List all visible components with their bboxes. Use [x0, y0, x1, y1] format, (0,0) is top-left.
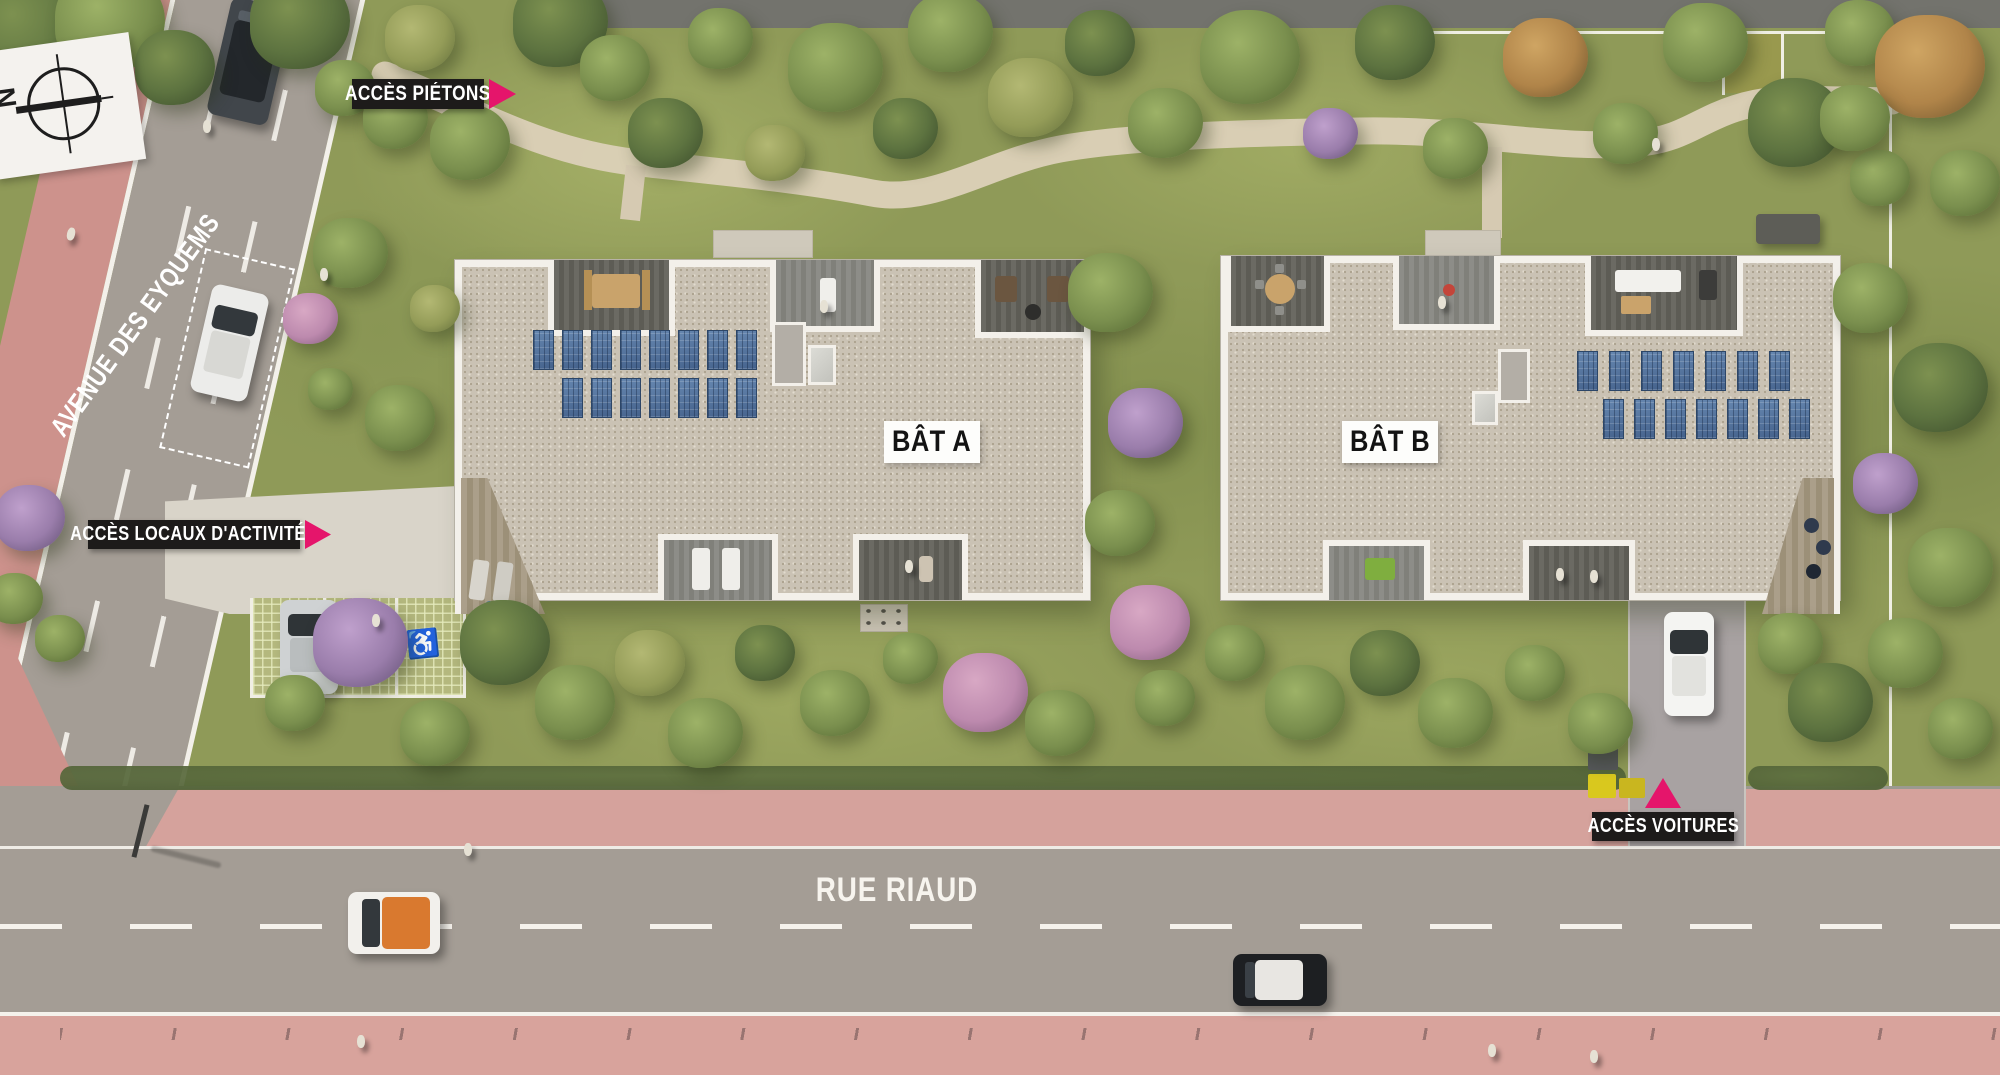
tree	[1568, 693, 1633, 754]
pedestrian	[1488, 1044, 1496, 1057]
solar-panel	[1634, 399, 1655, 439]
tree	[1853, 453, 1918, 514]
lounge-chair	[692, 548, 710, 590]
tree	[1868, 618, 1943, 689]
car-windshield	[1670, 630, 1708, 654]
pedestrian	[1556, 568, 1564, 581]
tree	[1930, 150, 2000, 216]
compass-icon: N	[0, 32, 146, 180]
corner-deck	[1762, 478, 1840, 614]
armchair	[995, 276, 1017, 302]
solar-panel	[591, 330, 612, 370]
tree	[1788, 663, 1873, 743]
table	[1365, 558, 1395, 580]
tree	[385, 5, 455, 71]
solar-panel	[620, 378, 641, 418]
tree	[688, 8, 753, 69]
chair	[1297, 280, 1306, 289]
tree	[668, 698, 743, 769]
solar-panel	[707, 330, 728, 370]
car	[1664, 612, 1714, 716]
tree	[1503, 18, 1588, 98]
skylight	[808, 345, 836, 385]
building-a-label: BÂT A	[884, 421, 980, 463]
solar-panel	[1641, 351, 1662, 391]
pedestrian	[372, 614, 380, 627]
roof-terrace	[658, 534, 778, 600]
grill	[1699, 270, 1717, 300]
outdoor-kitchen-counter	[1615, 270, 1681, 292]
solar-panel	[562, 330, 583, 370]
pedestrian	[464, 843, 472, 856]
roof-terrace	[1393, 256, 1500, 330]
center-line-marking	[0, 924, 2000, 929]
pouf	[1816, 540, 1831, 555]
solar-panel	[1789, 399, 1810, 439]
lounge-chair	[492, 561, 513, 603]
chair	[1255, 280, 1264, 289]
solar-panel	[562, 378, 583, 418]
pedestrian	[1590, 570, 1598, 583]
bench	[642, 270, 650, 310]
roof-terrace	[1585, 256, 1743, 336]
table	[1265, 274, 1295, 304]
tree	[1908, 528, 1993, 608]
solar-panel	[1673, 351, 1694, 391]
tree	[1128, 88, 1203, 159]
solar-panel	[1609, 351, 1630, 391]
tree	[1303, 108, 1358, 160]
solar-panel	[678, 378, 699, 418]
skylight	[1472, 391, 1498, 425]
corner-deck	[455, 478, 545, 614]
solar-panel	[1737, 351, 1758, 391]
tree	[1108, 388, 1183, 459]
access-business-label: ACCÈS LOCAUX D'ACTIVITÉS	[88, 520, 300, 549]
car-roof	[1672, 656, 1706, 696]
recycling-bin	[1619, 778, 1645, 798]
solar-panel	[1758, 399, 1779, 439]
tree	[943, 653, 1028, 733]
terrace-deck	[1529, 546, 1629, 600]
tree	[988, 58, 1073, 138]
solar-panel-row	[562, 378, 757, 418]
tree	[883, 633, 938, 685]
pedestrian	[320, 268, 328, 281]
picnic-pad	[860, 604, 908, 632]
pedestrian	[203, 120, 211, 133]
tree	[788, 23, 883, 112]
car-roof	[382, 897, 430, 949]
solar-panel	[533, 330, 554, 370]
hedge	[60, 766, 1626, 790]
tree	[1350, 630, 1420, 696]
lounge-chair	[468, 559, 489, 601]
pedestrian	[905, 560, 913, 573]
tree	[460, 600, 550, 685]
solar-panel	[1727, 399, 1748, 439]
tree	[1928, 698, 1993, 759]
solar-panel-row	[533, 330, 757, 370]
solar-panel	[736, 378, 757, 418]
car-windshield	[1245, 962, 1255, 998]
table	[1025, 304, 1041, 320]
solar-panel	[1665, 399, 1686, 439]
solar-panel	[736, 330, 757, 370]
rue-riaud-south-sidewalk	[0, 1016, 2000, 1075]
umbrella	[1443, 284, 1455, 296]
svg-text:N: N	[0, 85, 23, 109]
bench	[584, 270, 592, 310]
north-compass: N	[0, 32, 146, 180]
solar-panel	[1603, 399, 1624, 439]
entrance-pad	[1425, 230, 1501, 258]
solar-panel	[591, 378, 612, 418]
pedestrian	[357, 1035, 365, 1048]
tree	[308, 368, 353, 410]
access-pedestrians-label: ACCÈS PIÉTONS	[352, 79, 484, 109]
roof-terrace	[548, 260, 675, 336]
tree	[400, 700, 470, 766]
roof-terrace	[1225, 256, 1330, 332]
solar-panel	[649, 330, 670, 370]
site-plan: ♿	[0, 0, 2000, 1075]
tree	[1833, 263, 1908, 334]
chair	[1275, 306, 1284, 315]
car	[348, 892, 440, 954]
solar-panel	[1577, 351, 1598, 391]
car-windshield	[362, 899, 380, 947]
tree	[800, 670, 870, 736]
tree	[628, 98, 703, 169]
north-fence	[1408, 31, 1890, 34]
pouf	[1804, 518, 1819, 533]
tree	[1418, 678, 1493, 749]
business-forecourt	[165, 486, 458, 614]
garden-furniture	[1756, 214, 1820, 244]
pedestrian	[1438, 296, 1446, 309]
car-roof	[1255, 960, 1303, 1000]
solar-panel	[1769, 351, 1790, 391]
car	[1233, 954, 1327, 1006]
table	[1621, 296, 1651, 314]
solar-panel-row	[1577, 351, 1790, 391]
tree	[580, 35, 650, 101]
rue-riaud-roadway	[0, 849, 2000, 1016]
tree	[1593, 103, 1658, 164]
solar-panel	[649, 378, 670, 418]
car-roof	[203, 330, 251, 380]
tree	[1820, 85, 1890, 151]
disabled-parking-icon: ♿	[404, 626, 441, 661]
solar-panel-row	[1603, 399, 1810, 439]
recycling-bin	[1588, 774, 1616, 798]
sidewalk-joints	[60, 1028, 2000, 1040]
chair	[919, 556, 933, 582]
pedestrian	[1652, 138, 1660, 151]
tree	[1663, 3, 1748, 83]
pedestrian	[1590, 1050, 1598, 1063]
building-a: BÂT A	[455, 260, 1090, 600]
hedge	[1748, 766, 1888, 790]
armchair	[1047, 276, 1069, 302]
pedestrian	[820, 300, 828, 313]
solar-panel	[1696, 399, 1717, 439]
building-b-label: BÂT B	[1342, 421, 1438, 463]
table	[592, 274, 640, 308]
tree	[1423, 118, 1488, 179]
tree	[873, 98, 938, 159]
terrace-deck	[664, 540, 772, 600]
access-cars-label: ACCÈS VOITURES	[1592, 812, 1734, 841]
solar-panel	[678, 330, 699, 370]
roof-terrace	[1323, 540, 1430, 600]
solar-panel	[620, 330, 641, 370]
pouf	[1806, 564, 1821, 579]
tree	[615, 630, 685, 696]
tree	[365, 385, 435, 451]
tree	[1893, 343, 1988, 432]
tree	[1025, 690, 1095, 756]
roof-terrace	[1523, 540, 1635, 600]
tree	[283, 293, 338, 345]
roof-shaft	[1498, 349, 1530, 403]
lounge-chair	[722, 548, 740, 590]
tree	[1065, 10, 1135, 76]
building-b: BÂT B	[1221, 256, 1840, 600]
solar-panel	[1705, 351, 1726, 391]
tree	[1085, 490, 1155, 556]
roof-shaft	[772, 322, 806, 386]
tree	[1068, 253, 1153, 333]
rue-street-name: RUE RIAUD	[822, 872, 972, 908]
entrance-pad	[713, 230, 813, 258]
tree	[313, 598, 408, 687]
solar-panel	[707, 378, 728, 418]
chair	[1275, 264, 1284, 273]
